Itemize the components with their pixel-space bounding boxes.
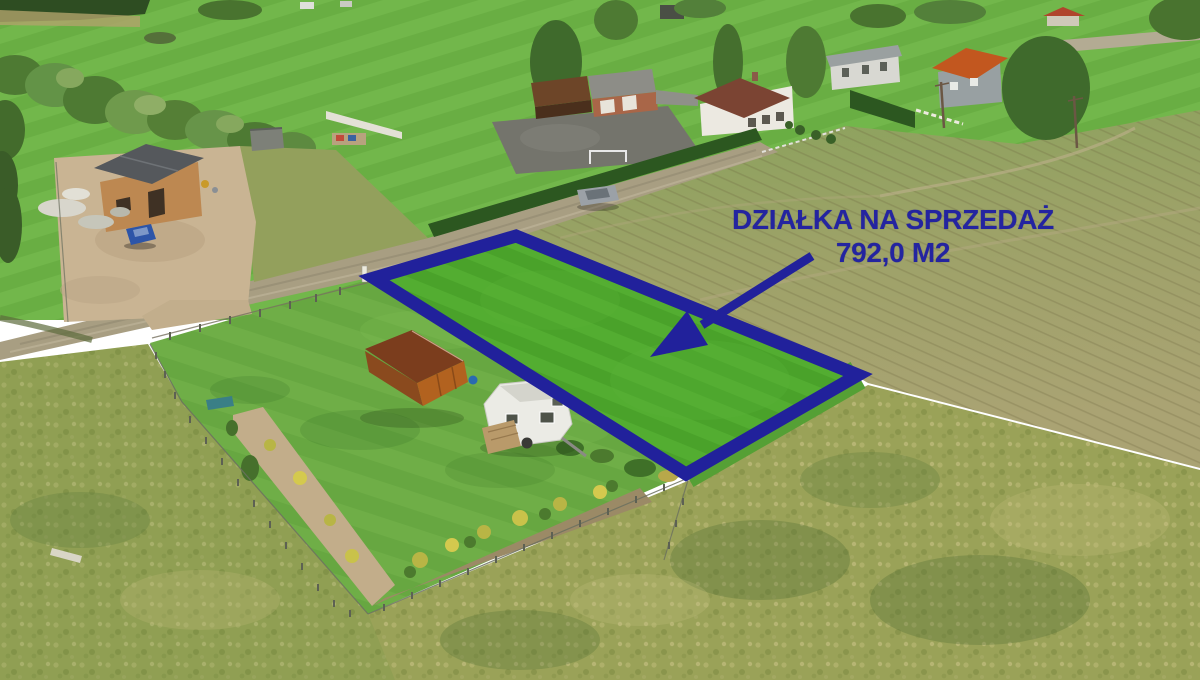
listing-area: 792,0 M2: [690, 239, 1096, 267]
listing-title: DZIAŁKA NA SPRZEDAŻ: [690, 206, 1096, 234]
blue-barrel: [469, 376, 478, 385]
gray-storage-shed: [250, 128, 284, 151]
barn-building: [531, 76, 592, 119]
listing-annotation: DZIAŁKA NA SPRZEDAŻ 792,0 M2: [690, 206, 1096, 267]
aerial-photo: DZIAŁKA NA SPRZEDAŻ 792,0 M2: [0, 0, 1200, 680]
